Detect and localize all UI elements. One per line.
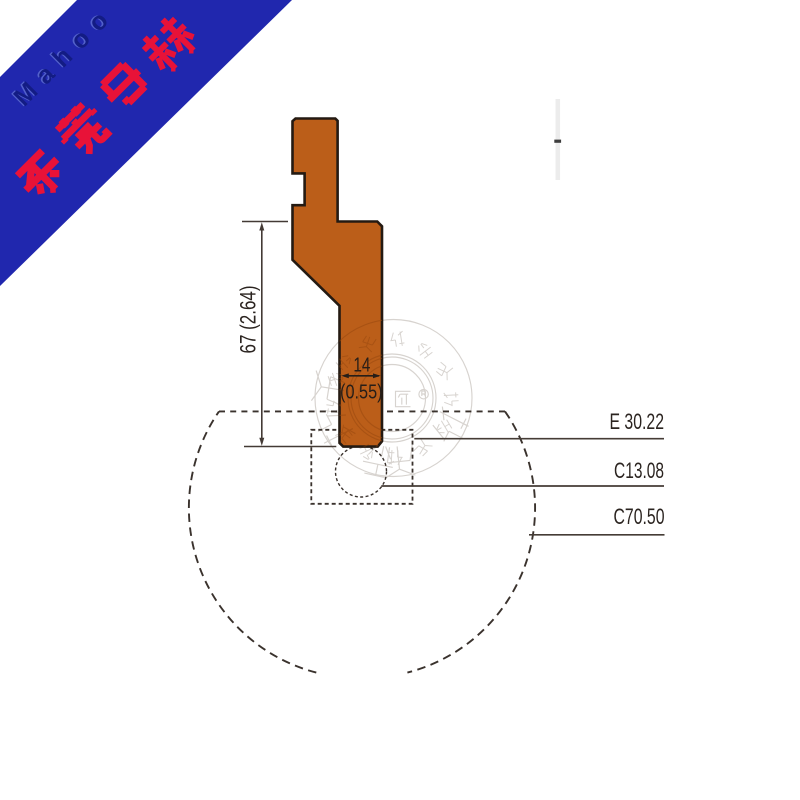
svg-text:E 30.22: E 30.22 [610,409,665,434]
svg-text:14: 14 [353,355,370,377]
svg-text:(0.55): (0.55) [340,380,383,403]
svg-text:C70.50: C70.50 [614,504,665,529]
svg-text:67 (2.64): 67 (2.64) [235,286,260,354]
svg-text:C13.08: C13.08 [614,458,664,483]
